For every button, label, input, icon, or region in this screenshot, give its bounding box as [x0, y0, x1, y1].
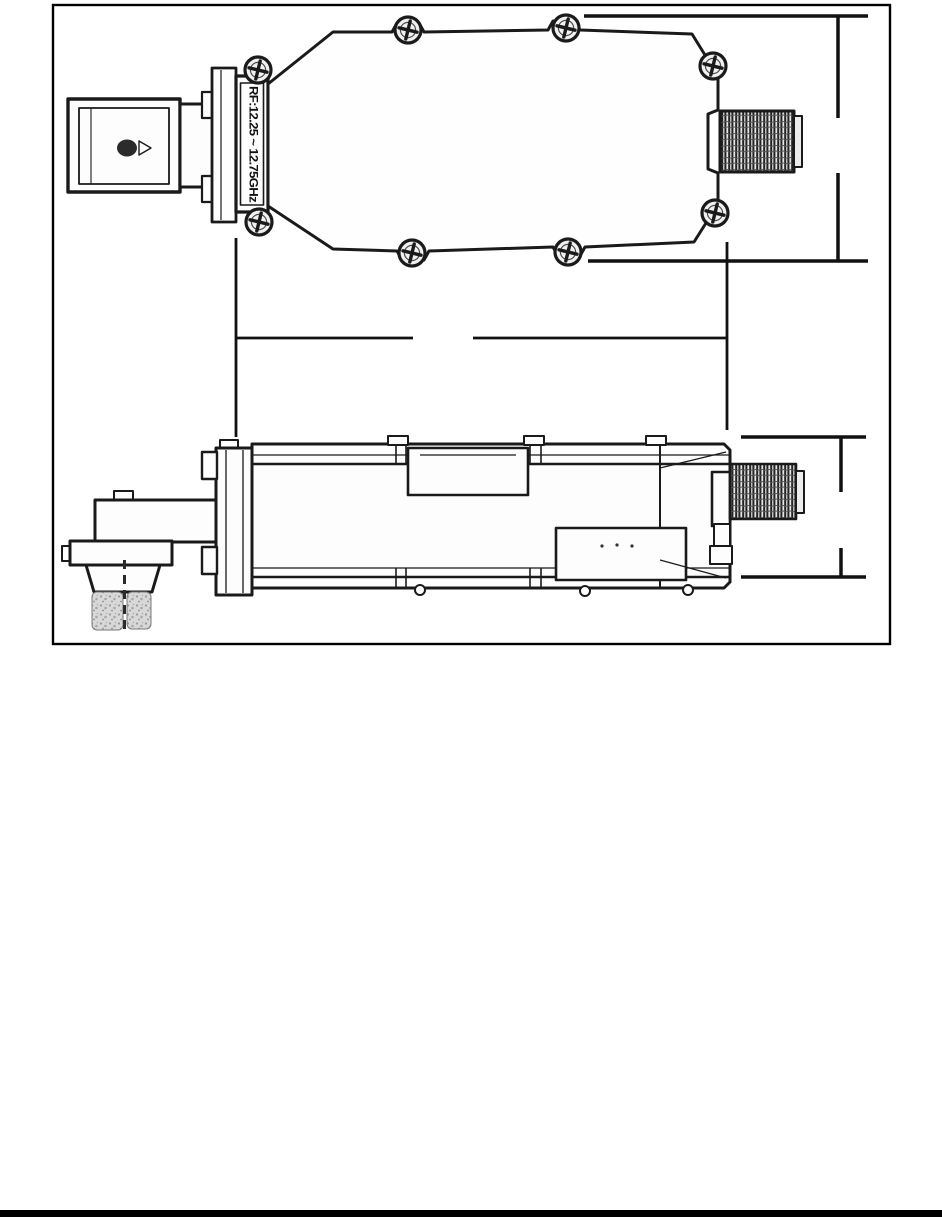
f-connector-top: [720, 111, 802, 172]
housing-outline: [268, 21, 718, 260]
document-page: RF:12.25 ~ 12.75GHz: [0, 0, 942, 1217]
screw-icon: [399, 240, 425, 266]
screw-icon: [700, 53, 726, 79]
flange-aperture: [117, 140, 137, 157]
technical-drawing: RF:12.25 ~ 12.75GHz: [0, 0, 942, 1217]
screw-icon: [395, 17, 421, 43]
waveguide-flange: [68, 99, 180, 192]
footer-rule: [0, 1210, 942, 1217]
side-body: [252, 436, 730, 596]
screw-icon: [245, 57, 271, 83]
screw-icon: [555, 239, 581, 265]
feed-arm: [95, 491, 216, 542]
screw-icon: [553, 15, 579, 41]
screw-icon: [702, 200, 728, 226]
frequency-label-text: RF:12.25 ~ 12.75GHz: [247, 86, 261, 203]
frequency-label: RF:12.25 ~ 12.75GHz: [236, 76, 268, 212]
feedhorn-feet: [92, 592, 151, 630]
screw-icon: [246, 209, 272, 235]
